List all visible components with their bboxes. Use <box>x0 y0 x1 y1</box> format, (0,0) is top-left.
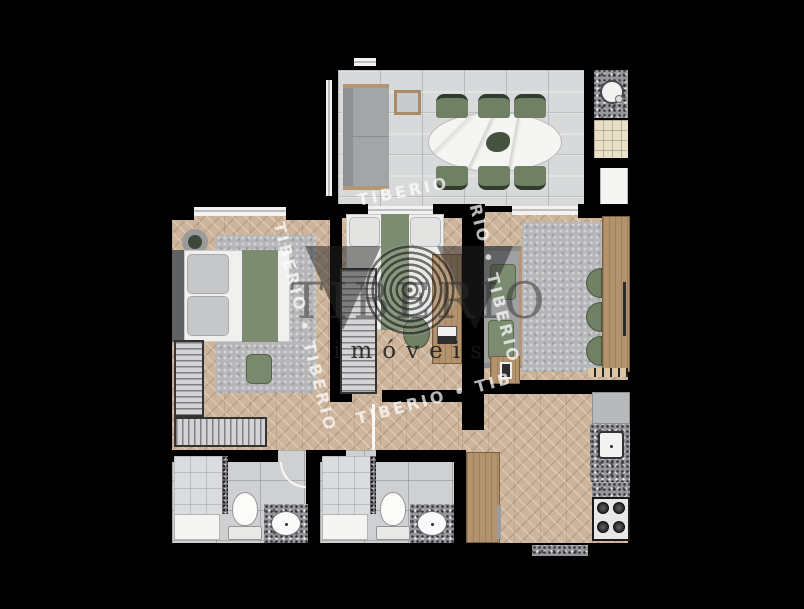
living-left-window <box>326 80 332 196</box>
bedroom1-closet-horizontal <box>174 417 267 447</box>
kitchen-square-sink <box>598 431 624 459</box>
kitchen-counter-gray <box>592 392 630 424</box>
living-sofa <box>343 84 389 190</box>
wall-bed1-top-a <box>158 204 194 220</box>
dining-chair-3 <box>514 94 546 118</box>
living-sofa-backrest <box>343 88 353 186</box>
wall-left-outer <box>158 204 172 557</box>
service-area-tiles <box>594 120 630 158</box>
room3-vent-strip <box>588 368 628 377</box>
wall-bath2-right <box>454 450 466 545</box>
dining-chair-5 <box>478 166 510 190</box>
bathroom2-sink <box>417 511 447 536</box>
bedroom2-pillow-1 <box>349 217 380 247</box>
kitchenette-round-sink <box>600 80 624 104</box>
bedroom2-pillow-2 <box>410 217 441 247</box>
bedroom1-window <box>194 207 286 216</box>
bathroom1-shower-divider <box>222 456 228 514</box>
mid-window-2 <box>512 206 578 215</box>
bathroom2-threshold <box>322 514 368 540</box>
bathroom2-shower <box>322 456 370 514</box>
bathroom2-toilet-bowl <box>380 492 406 526</box>
dining-chair-2 <box>478 94 510 118</box>
bathroom1-toilet-tank <box>228 526 262 540</box>
room3-sideboard-handle <box>623 282 626 336</box>
bedroom1-closet-vertical <box>174 340 204 417</box>
refrigerator <box>600 163 628 205</box>
bedroom1-headboard <box>172 250 184 342</box>
dining-chair-1 <box>436 94 468 118</box>
wall-bed1-top-b <box>286 204 332 220</box>
wall-right-outer <box>628 56 642 557</box>
floor-plan-image: TIBERIO imóveis TIBERIO TIBERIO • TIBERI… <box>0 0 804 609</box>
kitchen-stove <box>592 497 630 541</box>
bedroom1-pillow-2 <box>187 296 229 336</box>
bathroom1-shower <box>174 456 222 514</box>
bottom-sill-granite <box>532 545 588 556</box>
dining-chair-6 <box>514 166 546 190</box>
wall-fridge-left <box>584 166 600 216</box>
bedroom1-pouf <box>246 354 272 384</box>
kitchenette-sink-faucet <box>615 95 623 103</box>
living-sofa-cushion-line <box>353 136 389 137</box>
watermark-tagline-text: imóveis <box>325 338 500 364</box>
kitchen-cabinet-handle <box>497 505 501 539</box>
bathroom1-toilet-bowl <box>232 492 258 526</box>
bathroom1-threshold <box>174 514 220 540</box>
wall-kitchenette-left <box>584 56 594 164</box>
kitchen-cabinet <box>466 452 500 543</box>
bedroom1-plant-leaves <box>188 235 202 249</box>
wall-bath1-bath2 <box>306 450 320 545</box>
bedroom1-bed-runner <box>242 250 278 342</box>
kitchen-granite-strip <box>592 482 630 497</box>
bathroom2-toilet-tank <box>376 526 410 540</box>
bedroom1-pillow-1 <box>187 254 229 294</box>
bathroom2-shower-divider <box>370 456 376 514</box>
bathroom1-sink <box>271 511 301 536</box>
living-top-window <box>354 58 376 66</box>
living-side-table <box>394 90 421 115</box>
wall-bath2-top-b <box>376 450 466 462</box>
